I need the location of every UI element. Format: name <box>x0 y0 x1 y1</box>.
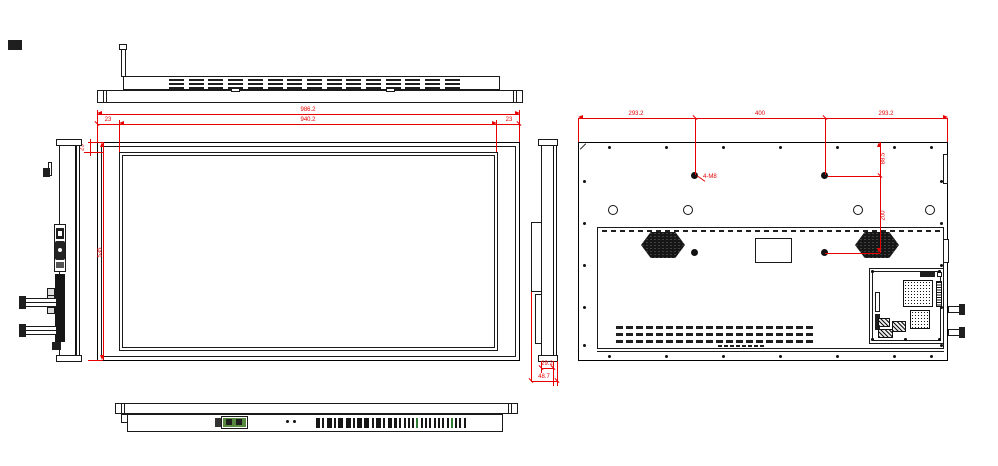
side-glass-lines <box>75 142 80 361</box>
vent-slot <box>268 87 283 89</box>
stud-line <box>25 330 57 331</box>
dim-line-rear-spans <box>578 118 948 119</box>
vent-slot <box>287 83 302 85</box>
io-port <box>334 418 336 428</box>
vent-dash <box>917 230 922 232</box>
io-port <box>421 418 423 428</box>
io-port <box>464 418 466 428</box>
vent-dash <box>756 333 763 336</box>
vent-dash <box>726 340 733 343</box>
vent-dash <box>796 326 803 329</box>
vent-slot <box>169 79 184 81</box>
dim-line-top-bezel <box>90 139 91 156</box>
screw <box>836 146 839 149</box>
vent-dash <box>746 340 753 343</box>
ops-latch <box>875 292 880 312</box>
vent-dash <box>890 230 895 232</box>
dim-rear-vesa-horizontal: 400 <box>738 111 782 118</box>
rear-lower-bulge <box>535 294 542 344</box>
stud-cap <box>959 327 965 338</box>
arrowhead <box>578 115 583 119</box>
vent-dash <box>736 340 743 343</box>
bottom-notch <box>121 414 128 423</box>
screw <box>722 355 725 358</box>
vent-slot <box>405 83 420 85</box>
vent-slot <box>366 83 381 85</box>
io-port <box>459 418 461 428</box>
power-switch-rocker <box>58 231 62 236</box>
power-label <box>56 262 64 268</box>
screw <box>871 338 874 341</box>
dim-front-bezel-left: 23 <box>100 117 116 124</box>
vent-slot <box>445 83 460 85</box>
side-bottom-cap <box>56 355 82 362</box>
vent-dash <box>764 230 769 232</box>
vent-slot <box>208 79 223 81</box>
vent-slot <box>169 87 184 89</box>
io-port <box>327 418 332 428</box>
io-port <box>434 418 436 428</box>
vent-dash <box>718 345 722 347</box>
connector-line <box>48 307 54 308</box>
vent-slot <box>405 87 420 89</box>
vent-dash <box>666 340 673 343</box>
vent-dash <box>836 230 841 232</box>
vent-slot <box>405 79 420 81</box>
vent-dash <box>616 333 623 336</box>
vent-dash <box>806 333 813 336</box>
vent-slot <box>287 87 302 89</box>
screw <box>940 306 943 309</box>
rating-label <box>755 238 792 263</box>
vent-slot <box>228 79 243 81</box>
edge-fitting <box>943 239 949 263</box>
vent-slot <box>307 79 322 81</box>
ops-port <box>878 329 893 338</box>
screw <box>583 222 586 225</box>
stud-line <box>25 302 57 303</box>
vent-slot <box>307 83 322 85</box>
vent-slot <box>386 83 401 85</box>
vent-dash <box>656 340 663 343</box>
vent-dash <box>755 230 760 232</box>
engineering-drawing: 986.2 940.2 23 23 535 23 <box>0 0 998 466</box>
vent-dash <box>686 340 693 343</box>
io-port <box>346 418 351 428</box>
vent-dash <box>782 230 787 232</box>
vent-slot <box>327 83 342 85</box>
vent-slot <box>268 83 283 85</box>
vent-dash <box>746 230 751 232</box>
vent-dash <box>716 340 723 343</box>
vent-dash <box>728 230 733 232</box>
ops-port <box>878 318 890 327</box>
vent-dash <box>656 230 661 232</box>
edge-fitting <box>943 154 948 184</box>
end-cap-line <box>103 90 104 103</box>
vent-slot <box>425 83 440 85</box>
vent-dash <box>636 333 643 336</box>
vent-slot <box>366 87 381 89</box>
vent-dash <box>701 230 706 232</box>
vent-dash <box>665 230 670 232</box>
vent-dash <box>636 326 643 329</box>
arrowhead <box>97 111 102 115</box>
extension-line <box>84 152 104 153</box>
side-top-cap <box>56 139 82 146</box>
antenna-rod <box>121 49 126 77</box>
io-port <box>416 418 418 428</box>
extension-line <box>825 253 880 254</box>
vent-dash <box>766 333 773 336</box>
vent-dash <box>796 340 803 343</box>
screw <box>779 146 782 149</box>
vent-dash <box>766 340 773 343</box>
vent-slot <box>425 87 440 89</box>
vent-slot <box>189 87 204 89</box>
ops-slot <box>920 272 935 277</box>
vent-dash <box>706 333 713 336</box>
vent-dash <box>686 326 693 329</box>
io-port <box>404 418 406 428</box>
extension-line <box>947 118 948 142</box>
screw <box>665 355 668 358</box>
handle-hole <box>683 205 693 215</box>
dim-rear-vesa-vertical: 200 <box>881 204 888 228</box>
vent-dash <box>683 230 688 232</box>
vent-dash <box>854 230 859 232</box>
dim-rear-span-left: 293.2 <box>614 111 658 118</box>
vent-dash <box>863 230 868 232</box>
vent-dash <box>696 340 703 343</box>
stud-cap <box>19 296 26 309</box>
vesa-hole-callout: 4-M8 <box>703 174 725 181</box>
vent-dash <box>746 333 753 336</box>
connector-line <box>48 295 54 296</box>
vent-dash <box>724 345 728 347</box>
ops-port <box>892 321 906 332</box>
vent-slot <box>327 87 342 89</box>
io-port <box>442 418 444 428</box>
extension-line <box>531 292 532 382</box>
extension-line <box>578 118 579 142</box>
screw <box>779 355 782 358</box>
vent-slot <box>445 87 460 89</box>
extension-line <box>828 176 880 177</box>
vent-dash <box>696 326 703 329</box>
vent-slot <box>208 83 223 85</box>
bottom-glass-edge <box>115 403 518 414</box>
dim-line-overall-depth <box>531 381 558 382</box>
cover-bottom-line <box>597 351 944 352</box>
vent-dash <box>748 345 752 347</box>
handle-hole <box>608 205 618 215</box>
vent-slot <box>366 79 381 81</box>
dim-side-overall-depth: 48.7 <box>531 374 557 381</box>
io-port <box>425 418 427 428</box>
end-cap-line <box>511 403 512 414</box>
antenna-connector-cap <box>43 168 50 177</box>
vent-dash <box>629 230 634 232</box>
vent-dash <box>646 340 653 343</box>
io-port <box>408 418 410 428</box>
screw <box>608 146 611 149</box>
screw <box>930 146 933 149</box>
vent-dash <box>756 340 763 343</box>
screw <box>871 270 874 273</box>
vent-dash <box>716 333 723 336</box>
io-port <box>429 418 431 428</box>
screw <box>940 264 943 267</box>
vent-dash <box>746 326 753 329</box>
screw <box>583 264 586 267</box>
io-port <box>322 418 324 428</box>
vent-dash <box>656 333 663 336</box>
dim-front-bezel-right: 23 <box>501 117 517 124</box>
stud-cap <box>959 304 965 315</box>
terminal-slot <box>236 419 242 425</box>
ops-heatsink-small <box>910 310 930 329</box>
dim-front-overall-width: 986.2 <box>288 107 328 114</box>
screw <box>893 355 896 358</box>
screw <box>836 355 839 358</box>
vent-dash <box>636 340 643 343</box>
dim-side-body-thickness: 29.2 <box>534 361 560 368</box>
screw <box>938 270 941 273</box>
vent-slot <box>228 87 243 89</box>
io-port <box>383 418 385 428</box>
vent-slot <box>228 83 243 85</box>
end-cap-line <box>513 90 514 103</box>
vent-slot <box>208 87 223 89</box>
vent-slot <box>346 83 361 85</box>
vent-slot <box>307 87 322 89</box>
vent-slot <box>248 83 263 85</box>
dim-front-overall-height: 535 <box>98 241 105 265</box>
vent-dash <box>935 230 940 232</box>
vent-dash <box>881 230 886 232</box>
ops-heatsink <box>903 280 933 307</box>
dim-front-active-width: 940.2 <box>288 117 328 124</box>
vent-dash <box>706 326 713 329</box>
vent-dash <box>908 230 913 232</box>
dim-rear-span-right: 293.2 <box>864 111 908 118</box>
vent-slot <box>189 79 204 81</box>
screw <box>938 338 941 341</box>
vent-slot <box>268 79 283 81</box>
screw-hole <box>286 420 289 423</box>
vent-dash <box>674 230 679 232</box>
ops-screw-boss <box>937 272 942 277</box>
front-active-area-inner <box>122 155 495 348</box>
power-inlet-pin <box>58 248 62 252</box>
io-port <box>388 418 392 428</box>
stud-cap <box>19 324 26 337</box>
io-port <box>316 418 320 428</box>
screw <box>940 180 943 183</box>
io-port <box>451 418 453 428</box>
vent-dash <box>611 230 616 232</box>
end-cap-line <box>124 403 125 414</box>
vent-slot <box>346 87 361 89</box>
extension-line <box>88 360 103 361</box>
vent-dash <box>754 345 758 347</box>
vent-dash <box>776 326 783 329</box>
screw <box>583 306 586 309</box>
vent-dash <box>809 230 814 232</box>
vent-slot <box>327 79 342 81</box>
io-port <box>376 418 381 428</box>
io-port <box>438 418 440 428</box>
io-port <box>399 418 401 428</box>
extension-line <box>695 118 696 175</box>
vent-slot <box>248 79 263 81</box>
vent-dash <box>796 333 803 336</box>
handle-hole <box>925 205 935 215</box>
vent-dash <box>646 326 653 329</box>
ops-pin-header <box>936 281 942 307</box>
handle-hole <box>853 205 863 215</box>
screw-hole <box>293 420 296 423</box>
io-port <box>353 418 355 428</box>
vent-dash <box>647 230 652 232</box>
vent-dash <box>719 230 724 232</box>
dim-line-overall-width <box>97 114 520 115</box>
arrowhead <box>119 121 124 125</box>
dim-line-active-width <box>97 124 520 125</box>
vent-dash <box>926 230 931 232</box>
vent-dash <box>899 230 904 232</box>
arrowhead <box>515 111 520 115</box>
vent-slot <box>445 79 460 81</box>
vent-dash <box>696 333 703 336</box>
vent-slot <box>169 83 184 85</box>
vent-dash <box>776 333 783 336</box>
vent-slot <box>425 79 440 81</box>
vent-dash <box>736 326 743 329</box>
end-cap-line <box>508 403 509 414</box>
vent-dash <box>666 333 673 336</box>
vent-dash <box>872 230 877 232</box>
screw <box>583 344 586 347</box>
screw <box>722 146 725 149</box>
vent-slot <box>386 87 401 89</box>
end-cap-line <box>516 90 517 103</box>
vent-dash <box>726 326 733 329</box>
side-glass-lines <box>553 142 557 361</box>
vent-dash <box>706 340 713 343</box>
io-port <box>357 418 362 428</box>
corner-mark <box>8 40 22 50</box>
vent-dash <box>766 326 773 329</box>
dim-rear-hole-top-offset: 88.5 <box>881 147 888 171</box>
screw <box>665 146 668 149</box>
end-cap-line <box>121 403 122 414</box>
screw <box>893 146 896 149</box>
vent-dash <box>626 340 633 343</box>
vent-dash <box>736 345 740 347</box>
bottom-stub <box>52 342 61 350</box>
vent-dash <box>686 333 693 336</box>
vent-slot <box>189 83 204 85</box>
vent-dash <box>602 230 607 232</box>
screw <box>583 180 586 183</box>
vent-dash <box>730 345 734 347</box>
vent-dash <box>646 333 653 336</box>
vent-dash <box>676 333 683 336</box>
vent-dash <box>786 333 793 336</box>
vent-dash <box>626 326 633 329</box>
vent-dash <box>800 230 805 232</box>
arrowhead <box>943 115 948 119</box>
vent-dash <box>616 340 623 343</box>
vent-dash <box>626 333 633 336</box>
io-port <box>455 418 457 428</box>
vent-dash <box>845 230 850 232</box>
vent-dash <box>710 230 715 232</box>
screw <box>608 355 611 358</box>
vent-dash <box>716 326 723 329</box>
vent-dash <box>806 340 813 343</box>
vent-dash <box>676 326 683 329</box>
io-port <box>372 418 374 428</box>
vent-dash <box>638 230 643 232</box>
vent-dash <box>666 326 673 329</box>
side-top-cap <box>538 139 558 146</box>
screw <box>940 344 943 347</box>
io-port <box>338 418 343 428</box>
screw <box>940 222 943 225</box>
screw <box>930 355 933 358</box>
vent-dash <box>737 230 742 232</box>
io-port <box>364 418 369 428</box>
vent-dash <box>616 326 623 329</box>
vent-slot <box>386 79 401 81</box>
vent-dash <box>742 345 746 347</box>
vent-dash <box>760 345 764 347</box>
io-port <box>394 418 397 428</box>
vesa-hole <box>691 249 698 256</box>
vent-dash <box>726 333 733 336</box>
vent-dash <box>818 230 823 232</box>
vent-slot <box>248 87 263 89</box>
vent-dash <box>786 326 793 329</box>
io-port <box>412 418 414 428</box>
vent-dash <box>676 340 683 343</box>
rear-bulge <box>531 222 542 292</box>
io-port <box>447 418 449 428</box>
vent-dash <box>773 230 778 232</box>
vent-dash <box>736 333 743 336</box>
vent-dash <box>692 230 697 232</box>
top-glass-edge <box>97 90 523 103</box>
vent-dash <box>776 340 783 343</box>
end-cap-line <box>106 90 107 103</box>
vent-dash <box>791 230 796 232</box>
vent-dash <box>656 326 663 329</box>
vent-dash <box>827 230 832 232</box>
vent-slot <box>346 79 361 81</box>
vent-dash <box>806 326 813 329</box>
vent-dash <box>756 326 763 329</box>
screw <box>904 338 907 341</box>
extension-line <box>825 118 826 175</box>
terminal-slot <box>226 419 232 425</box>
vent-dash <box>786 340 793 343</box>
vent-slot <box>287 79 302 81</box>
vent-dash <box>620 230 625 232</box>
arrowhead <box>492 121 497 125</box>
